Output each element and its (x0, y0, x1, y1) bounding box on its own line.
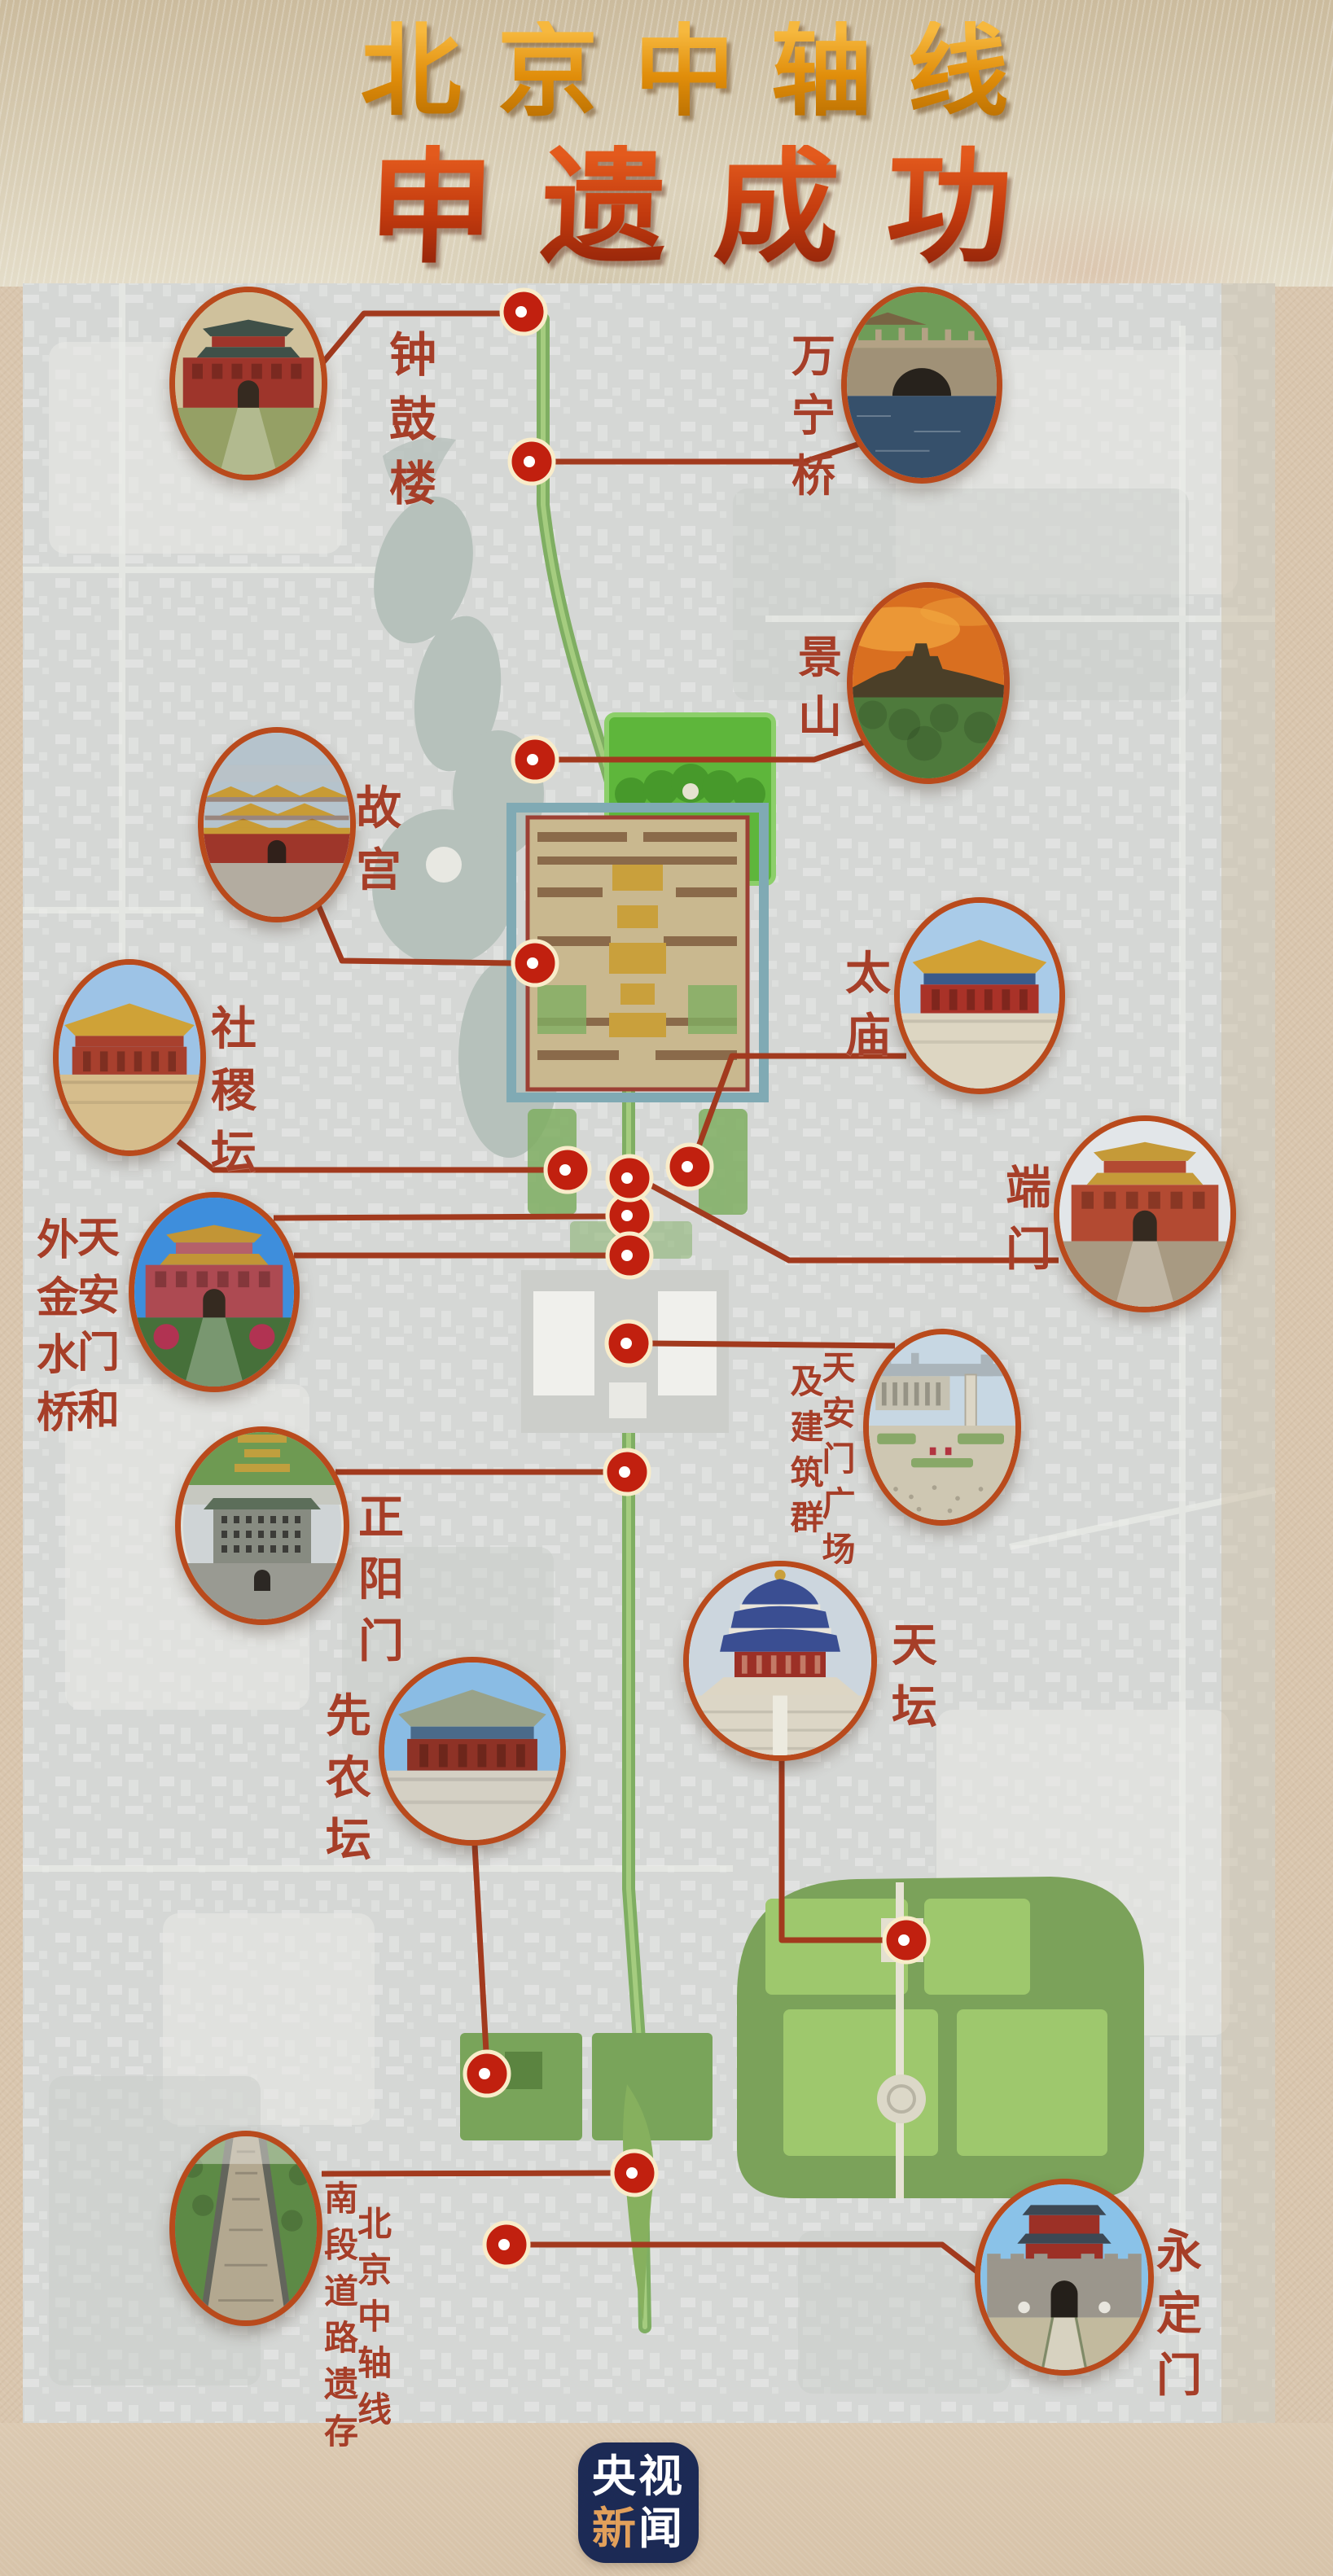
photo-illustration-guangchang (869, 1334, 1015, 1520)
site-label-guangchang-col2: 及建筑群 (791, 1360, 824, 1541)
site-label-wanningqiao: 万宁桥 (791, 327, 835, 506)
logo-line-1: 央视 (592, 2451, 685, 2503)
map-temple-of-heaven-park (737, 1877, 1144, 2198)
site-photo-taimiao (894, 897, 1065, 1094)
connector-line-guangchang (651, 1343, 895, 1346)
poster-subtitle: 申遗成功 (0, 145, 1333, 270)
site-photo-waijinshuiqiao (129, 1192, 300, 1392)
map-marker-waijinshuiqiao-2 (607, 1233, 651, 1277)
map-marker-gugong (513, 941, 557, 985)
map-marker-taimiao (668, 1145, 712, 1189)
site-photo-duanmen (1054, 1115, 1236, 1312)
photo-illustration-xiannongtan (384, 1663, 560, 1840)
photo-illustration-yongdingmen (980, 2184, 1148, 2370)
logo-rest-char: 闻 (638, 2504, 685, 2553)
map-marker-yongdingmen (485, 2223, 528, 2267)
site-photo-gugong (198, 727, 356, 922)
photo-illustration-gugong (204, 733, 350, 917)
site-label-xiannongtan: 先农坛 (326, 1685, 371, 1871)
site-label-shejitan: 社稷坛 (211, 998, 257, 1184)
map-marker-xiannongtan (465, 2052, 509, 2096)
site-label-waijinshuiqiao-col1: 天安门和 (77, 1210, 120, 1440)
map-marker-shejitan (546, 1148, 590, 1192)
site-photo-yongdingmen (975, 2179, 1154, 2376)
site-photo-wanningqiao (841, 287, 1002, 484)
site-label-yongdingmen: 永定门 (1156, 2221, 1202, 2407)
site-label-guangchang-col1: 天安门广场 (822, 1346, 856, 1573)
map-marker-guangchang (607, 1321, 651, 1365)
site-photo-jingshan (847, 582, 1010, 784)
map-marker-duanmen (607, 1156, 651, 1200)
site-photo-zhonggulou (169, 287, 327, 480)
map-jade-island (426, 847, 462, 883)
photo-illustration-nanduan (175, 2136, 317, 2320)
site-photo-shejitan (53, 959, 206, 1156)
map-marker-nanduan (612, 2151, 656, 2195)
site-label-zhengyangmen: 正阳门 (358, 1487, 404, 1672)
photo-illustration-shejitan (59, 965, 200, 1150)
connector-line-waijinshuiqiao (274, 1216, 608, 1218)
photo-illustration-jingshan (853, 588, 1004, 778)
site-label-nanduan-col2: 南段道路遗存 (324, 2175, 358, 2455)
map-marker-tiantan (884, 1918, 928, 1962)
site-photo-xiannongtan (379, 1657, 566, 1846)
map-marker-wanningqiao (510, 440, 554, 484)
poster-title: 北京中轴线 (0, 21, 1333, 122)
map-marker-zhonggulou (502, 290, 546, 334)
site-label-nanduan-col1: 北京中轴线 (357, 2201, 392, 2434)
photo-illustration-zhonggulou (175, 292, 322, 475)
site-label-zhonggulou: 钟鼓楼 (389, 324, 436, 517)
site-label-jingshan: 景山 (798, 629, 842, 748)
site-label-duanmen: 端门 (1006, 1157, 1051, 1281)
photo-illustration-duanmen (1059, 1121, 1230, 1307)
map-marker-jingshan (513, 738, 557, 782)
photo-illustration-tiantan (689, 1566, 871, 1755)
photo-illustration-taimiao (900, 903, 1059, 1089)
photo-illustration-zhengyangmen (181, 1432, 344, 1619)
site-label-waijinshuiqiao-col2: 外金水桥 (37, 1212, 79, 1443)
photo-illustration-waijinshuiqiao (134, 1198, 294, 1387)
site-photo-zhengyangmen (175, 1426, 349, 1625)
site-photo-nanduan (169, 2131, 322, 2326)
connector-line-nanduan (322, 2173, 613, 2174)
map-marker-zhengyangmen (605, 1450, 649, 1494)
photo-illustration-wanningqiao (847, 292, 997, 478)
cctv-news-logo: 央视 新闻 (578, 2442, 699, 2563)
infographic-poster: 北京中轴线 申遗成功 钟鼓楼 万宁桥 景山 故宫 (0, 0, 1333, 2576)
site-photo-tiantan (683, 1561, 877, 1761)
logo-line-2: 新闻 (592, 2503, 685, 2555)
site-photo-guangchang (863, 1329, 1021, 1526)
site-label-gugong: 故宫 (356, 778, 401, 901)
site-label-taimiao: 太庙 (845, 943, 891, 1067)
logo-accent-char: 新 (592, 2504, 638, 2553)
site-label-tiantan: 天坛 (892, 1614, 937, 1738)
